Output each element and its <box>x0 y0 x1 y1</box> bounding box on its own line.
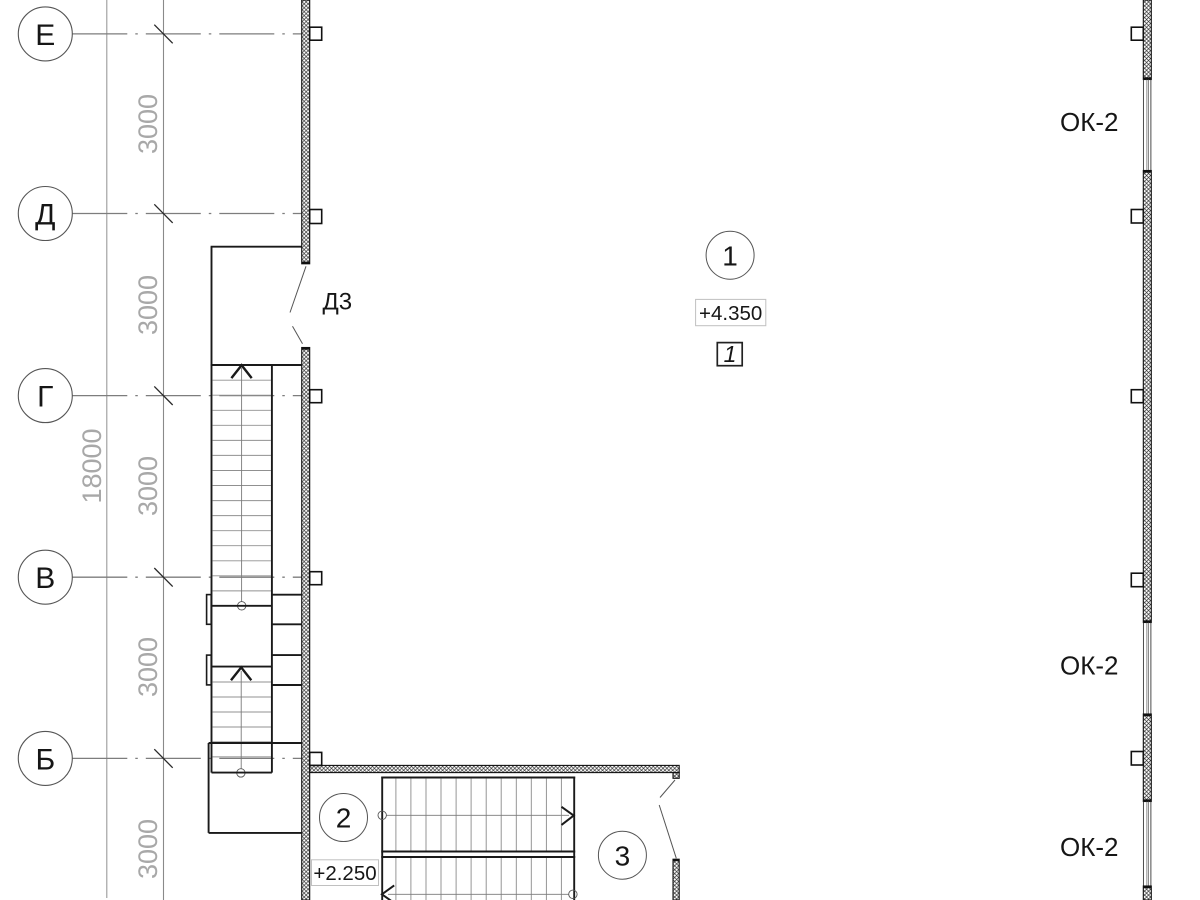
svg-text:В: В <box>35 562 55 595</box>
svg-text:3000: 3000 <box>133 94 163 154</box>
svg-text:2: 2 <box>336 803 352 834</box>
svg-text:1: 1 <box>724 341 737 367</box>
svg-text:ОК-2: ОК-2 <box>1060 107 1119 137</box>
svg-text:+2.250: +2.250 <box>313 862 376 885</box>
svg-text:ОК-2: ОК-2 <box>1060 650 1119 680</box>
svg-text:3: 3 <box>615 840 631 871</box>
svg-text:3000: 3000 <box>133 819 163 879</box>
svg-text:3000: 3000 <box>133 456 163 516</box>
svg-text:1: 1 <box>722 240 738 271</box>
svg-text:Б: Б <box>35 743 55 776</box>
svg-text:3000: 3000 <box>133 637 163 697</box>
svg-text:Д3: Д3 <box>323 288 353 315</box>
svg-text:+4.350: +4.350 <box>699 302 762 325</box>
svg-text:ОК-2: ОК-2 <box>1060 832 1119 862</box>
svg-text:18000: 18000 <box>77 428 107 503</box>
svg-text:Е: Е <box>35 19 55 52</box>
svg-text:3000: 3000 <box>133 275 163 335</box>
svg-text:Д: Д <box>35 198 55 231</box>
svg-text:Г: Г <box>37 381 53 414</box>
